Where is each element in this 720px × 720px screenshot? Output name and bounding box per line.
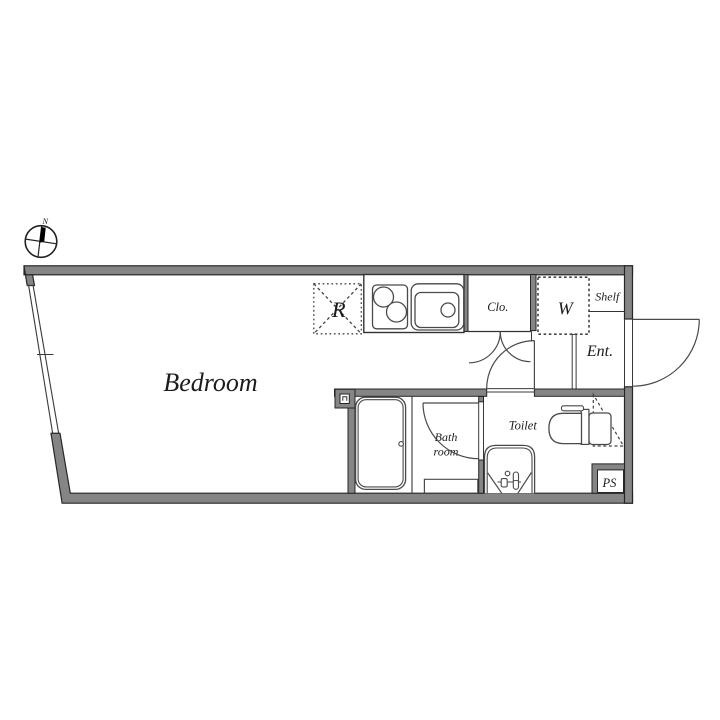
svg-text:Shelf: Shelf bbox=[595, 290, 621, 304]
svg-text:room: room bbox=[434, 444, 459, 458]
svg-text:R: R bbox=[331, 297, 346, 322]
svg-text:Ent.: Ent. bbox=[586, 343, 613, 360]
svg-text:Toilet: Toilet bbox=[509, 418, 538, 432]
svg-text:N: N bbox=[41, 217, 48, 226]
svg-text:Bedroom: Bedroom bbox=[163, 368, 257, 397]
svg-text:W: W bbox=[558, 299, 575, 319]
svg-text:Clo.: Clo. bbox=[487, 300, 508, 314]
svg-text:PS: PS bbox=[602, 476, 618, 490]
